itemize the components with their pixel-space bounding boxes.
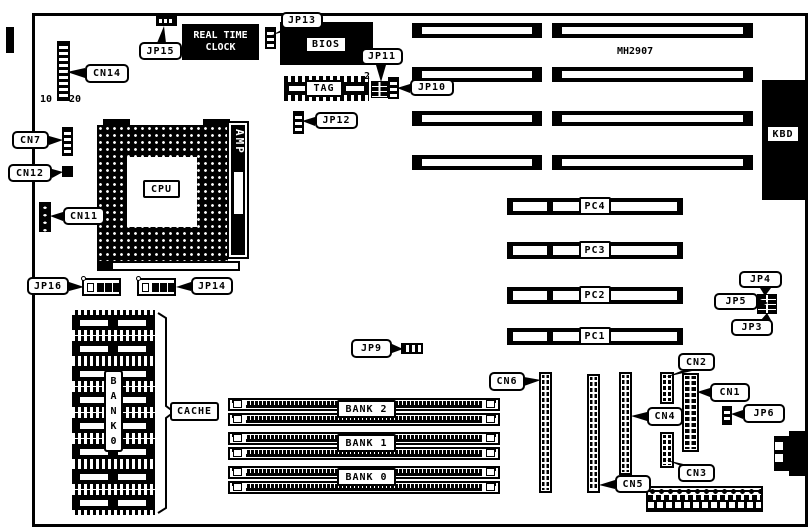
cn1-pointer xyxy=(697,388,710,397)
callout-jp3: JP3 xyxy=(731,319,773,336)
cache-bank0-text: BANK0 xyxy=(110,374,117,449)
callout-jp11: JP11 xyxy=(361,48,403,65)
cache-bank0-label: BANK0 xyxy=(104,370,123,452)
cn4-pointer xyxy=(631,412,647,421)
callout-jp9: JP9 xyxy=(351,339,392,358)
jp9-pointer xyxy=(392,344,403,353)
jp14-pointer xyxy=(176,282,191,291)
kbd-label: KBD xyxy=(766,125,800,143)
callout-jp5: JP5 xyxy=(714,293,758,310)
jp12-pointer xyxy=(302,117,315,126)
callout-cn14: CN14 xyxy=(85,64,129,83)
callout-cn5: CN5 xyxy=(615,475,651,493)
cn12-pointer xyxy=(52,169,63,178)
jp11-pointer xyxy=(376,65,386,82)
cn7-pointer xyxy=(49,136,63,145)
jp15-pointer xyxy=(157,26,166,43)
cn14-pin10-label: 10 xyxy=(40,94,52,105)
callout-jp16: JP16 xyxy=(27,277,69,295)
callout-jp15: JP15 xyxy=(139,42,182,60)
callout-cn11: CN11 xyxy=(63,207,105,225)
cn14-pin20-label: 20 xyxy=(69,94,81,105)
chipset-label: MH2907 xyxy=(617,46,653,57)
bios-label: BIOS xyxy=(305,36,347,53)
callout-jp6: JP6 xyxy=(743,404,785,423)
cn5-pointer xyxy=(599,480,615,489)
motherboard-diagram: MH2907 KBD REAL TIME CLOCK BIOS CN14 10 … xyxy=(0,0,812,531)
cpu-label: CPU xyxy=(143,180,180,198)
jp10-pointer xyxy=(397,84,410,93)
callout-cn3: CN3 xyxy=(678,464,715,482)
jp16-pointer xyxy=(69,282,84,291)
jp4-pointer xyxy=(760,288,771,296)
cn14-pointer xyxy=(67,68,85,78)
callout-cn1: CN1 xyxy=(710,383,750,402)
bank0-label: BANK 0 xyxy=(337,468,396,486)
callout-cache: CACHE xyxy=(170,402,219,421)
cn11-pointer xyxy=(50,212,63,221)
cn6-pointer xyxy=(524,377,541,386)
callout-cn2: CN2 xyxy=(678,353,715,371)
callout-jp10: JP10 xyxy=(410,79,454,96)
tag-label: TAG xyxy=(305,80,343,97)
callout-cn4: CN4 xyxy=(647,407,683,426)
callout-jp12: JP12 xyxy=(315,112,358,129)
callout-jp13: JP13 xyxy=(281,12,323,29)
jp6-pointer xyxy=(731,410,743,419)
callout-jp4: JP4 xyxy=(739,271,782,288)
bank1-label: BANK 1 xyxy=(337,434,396,452)
jp11-pin2-label: 2 xyxy=(364,71,370,82)
bank2-label: BANK 2 xyxy=(337,400,396,418)
callout-jp14: JP14 xyxy=(191,277,233,295)
callout-cn6: CN6 xyxy=(489,372,525,391)
callout-cn7: CN7 xyxy=(12,131,49,149)
jp5-pointer xyxy=(758,298,768,308)
callout-cn12: CN12 xyxy=(8,164,52,182)
cn2-pointer xyxy=(666,371,692,377)
jp13-pointer xyxy=(272,29,293,35)
